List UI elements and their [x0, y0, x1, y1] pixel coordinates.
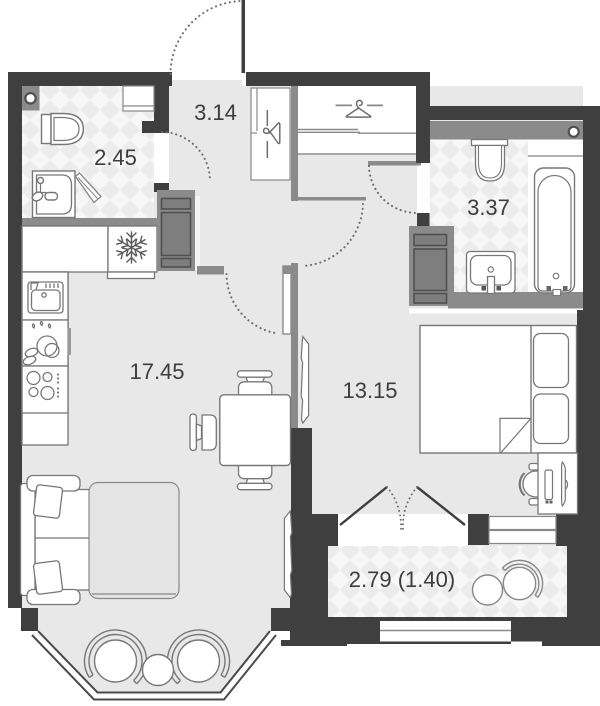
svg-text:3.37: 3.37 [467, 195, 510, 220]
svg-text:3.14: 3.14 [194, 100, 237, 125]
svg-text:13.15: 13.15 [342, 378, 397, 403]
svg-text:17.45: 17.45 [129, 359, 184, 384]
svg-text:2.45: 2.45 [94, 145, 137, 170]
svg-text:2.79 (1.40): 2.79 (1.40) [349, 567, 455, 592]
